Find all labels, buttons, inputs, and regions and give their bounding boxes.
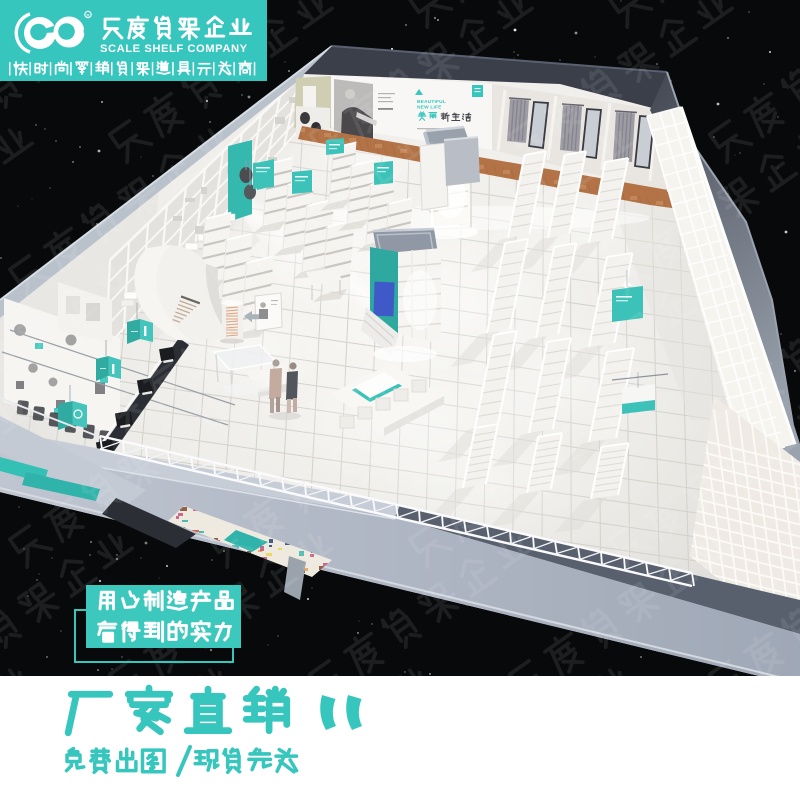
svg-text:NEW LIFE: NEW LIFE — [417, 105, 442, 111]
svg-text:SCALE SHELF COMPANY: SCALE SHELF COMPANY — [100, 43, 248, 55]
svg-text:BEAUTIFUL: BEAUTIFUL — [417, 99, 446, 105]
